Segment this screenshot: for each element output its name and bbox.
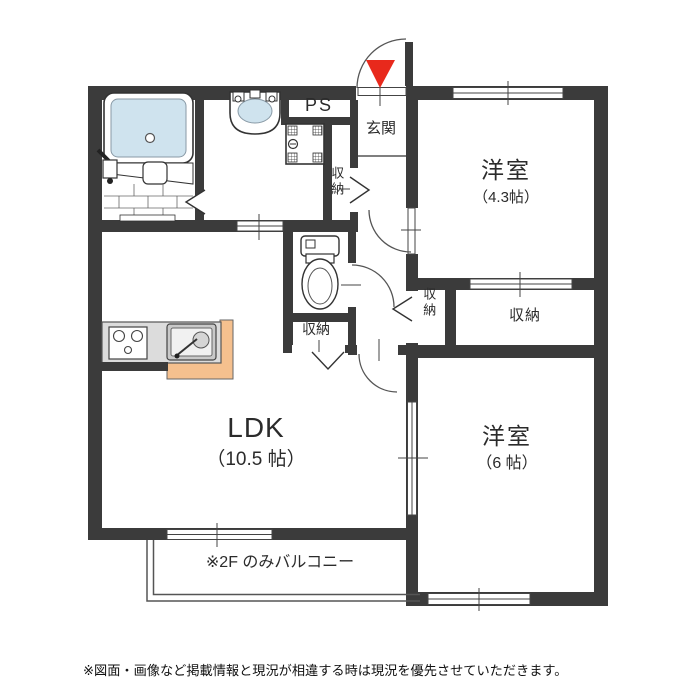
stove — [109, 327, 147, 359]
wall-closets-bottom — [406, 345, 608, 358]
kitchen-sink — [167, 324, 216, 360]
label-closet-toilet: 収納 — [285, 322, 347, 337]
wall-washroom-bottom — [88, 220, 356, 232]
closet1-folding-door — [350, 177, 369, 203]
closet3-folding-door — [393, 297, 412, 321]
bath-tiles — [104, 184, 193, 221]
label-closet-bedroom1: 収納 — [456, 308, 594, 325]
washbasin — [230, 90, 280, 134]
toilet — [301, 236, 339, 309]
label-ldk: LDK — [150, 413, 362, 444]
floor-plan: PS 玄関 収納 洋室 （4.3帖） 収納 収納 収納 LDK （10.5 帖）… — [0, 0, 700, 700]
label-bedroom2-size: （6 帖） — [418, 455, 596, 473]
bedroom1-door-arc — [369, 210, 411, 252]
wall-closet-divider — [445, 290, 456, 345]
bedroom1-door-leaf — [408, 208, 415, 254]
floor-plan-drawing — [0, 0, 700, 700]
label-bedroom2: 洋室 — [418, 424, 596, 449]
toilet-door-arc — [352, 265, 394, 307]
label-bedroom1-size: （4.3帖） — [418, 190, 594, 207]
label-closet-washroom: 収納 — [329, 166, 343, 198]
label-ldk-size: （10.5 帖） — [150, 450, 362, 471]
balcony-note: ※2F のみバルコニー — [150, 554, 410, 572]
label-bedroom1: 洋室 — [418, 158, 594, 183]
disclaimer-text: ※図面・画像など掲載情報と現況が相違する時は現況を優先させていただきます。 — [83, 664, 567, 679]
wall-porch-stub — [405, 42, 413, 88]
label-closet-hall: 収納 — [421, 287, 435, 319]
label-genkan: 玄関 — [356, 121, 406, 138]
entrance-door-leaf — [358, 88, 406, 96]
washing-machine-pan — [286, 124, 324, 164]
bathtub — [104, 93, 193, 163]
label-ps: PS — [288, 96, 350, 116]
closet2-folding-door — [312, 352, 344, 369]
entrance-marker-icon — [366, 60, 395, 88]
hall-ldk-door-opening — [357, 345, 398, 355]
hall-ldk-door-arc — [359, 354, 397, 392]
